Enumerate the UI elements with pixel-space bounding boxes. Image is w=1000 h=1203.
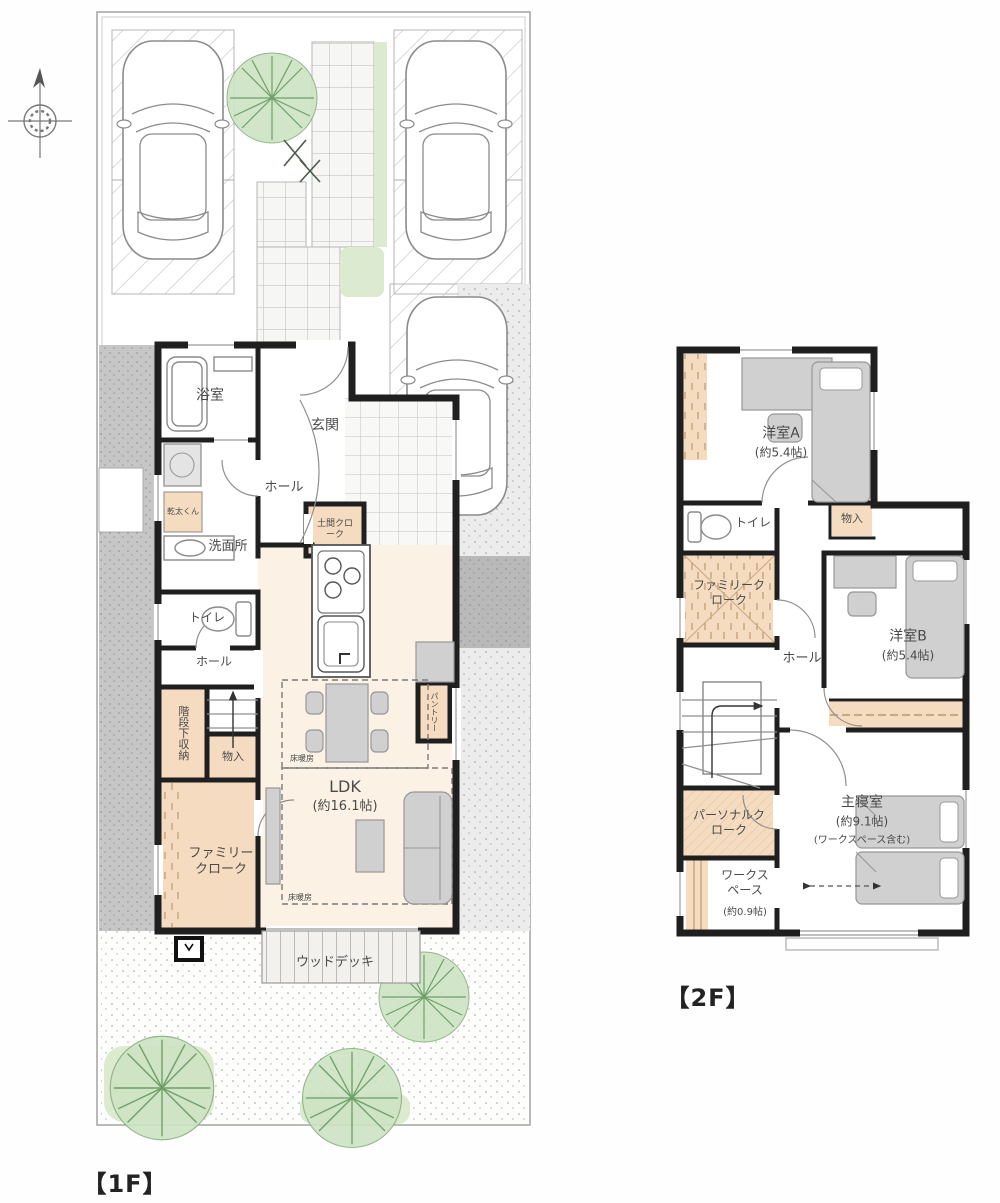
room-label-hall-lower: ホール bbox=[196, 655, 232, 670]
room-label-toilet-2f: トイレ bbox=[735, 516, 771, 531]
coffee-table-icon bbox=[356, 820, 384, 872]
room-label-pantry: パントリー bbox=[429, 692, 439, 732]
toilet-icon bbox=[688, 512, 731, 542]
room-label-master-size: (約9.1帖) bbox=[836, 815, 888, 830]
outdoor-tap-icon bbox=[176, 938, 202, 960]
room-label-room-a: 洋室A bbox=[762, 425, 800, 443]
sofa-icon bbox=[404, 792, 452, 904]
compass-icon bbox=[8, 68, 72, 158]
room-label-toilet-1f: トイレ bbox=[189, 611, 225, 626]
balcony-eave bbox=[786, 938, 938, 950]
room-label-room-a-size: (約5.4帖) bbox=[755, 446, 807, 461]
room-label-hall-upper: ホール bbox=[264, 480, 303, 496]
room-label-ldk-size: (約16.1帖) bbox=[312, 799, 377, 815]
label-dryer: 乾太くん bbox=[167, 507, 199, 517]
label-floor-heating-1: 床暖房 bbox=[290, 754, 314, 764]
car-icon bbox=[400, 41, 512, 259]
room-label-family-cloak-2f: ファミリークローク bbox=[693, 578, 765, 608]
room-label-closet-2f: 物入 bbox=[841, 512, 863, 526]
room-label-washroom: 洗面所 bbox=[208, 539, 247, 555]
room-label-entrance: 玄関 bbox=[311, 417, 339, 435]
car-icon bbox=[117, 41, 229, 259]
tv-board-icon bbox=[266, 788, 280, 884]
house-2f bbox=[676, 345, 971, 950]
floor-title-1f: 【1F】 bbox=[82, 1169, 167, 1199]
floor-title-2f: 【2F】 bbox=[665, 983, 750, 1013]
room-label-master: 主寝室 bbox=[841, 794, 883, 812]
bed-icon bbox=[812, 362, 870, 502]
room-label-closet-1f: 物入 bbox=[222, 750, 244, 764]
room-label-hall-2f: ホール bbox=[782, 651, 821, 667]
room-label-master-note: (ワークスペース含む) bbox=[814, 835, 910, 848]
room-label-room-b-size: (約5.4帖) bbox=[882, 649, 934, 664]
room-label-under-stair-storage: 階段下収納 bbox=[176, 706, 190, 761]
room-label-personal-cloak: パーソナルクローク bbox=[692, 808, 766, 838]
room-label-room-b: 洋室B bbox=[889, 628, 927, 646]
room-label-ldk: LDK bbox=[329, 777, 361, 797]
washer-icon bbox=[164, 444, 201, 486]
plan-linework bbox=[0, 0, 1000, 1203]
room-label-wood-deck: ウッドデッキ bbox=[296, 955, 374, 971]
room-label-workspace: ワークスペース bbox=[718, 868, 772, 898]
room-label-doma-cloak: 土間クローク bbox=[314, 519, 356, 542]
floor-plan-canvas: 浴室 玄関 ホール 乾太くん 洗面所 土間クローク トイレ ホール 階段下収納 … bbox=[0, 0, 1000, 1203]
kitchen-island-icon bbox=[312, 545, 370, 677]
room-label-workspace-size: (約0.9帖) bbox=[723, 907, 767, 920]
refrigerator-icon bbox=[416, 642, 454, 682]
room-label-bath: 浴室 bbox=[196, 387, 224, 405]
bath-counter bbox=[214, 357, 252, 371]
room-label-family-cloak-1f: ファミリークローク bbox=[183, 846, 259, 879]
label-floor-heating-2: 床暖房 bbox=[288, 893, 312, 903]
bed-icon bbox=[856, 852, 964, 904]
